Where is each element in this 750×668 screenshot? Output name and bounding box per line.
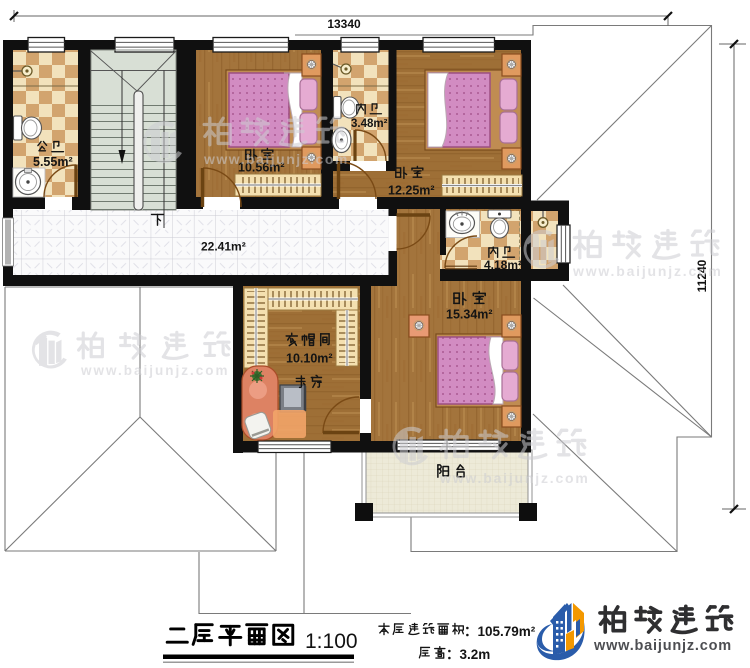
svg-text:1:100: 1:100: [305, 630, 358, 653]
svg-text:22.41m²: 22.41m²: [201, 240, 246, 254]
svg-text:3.48m²: 3.48m²: [351, 118, 388, 130]
svg-text:www.baijunjz.com: www.baijunjz.com: [439, 470, 590, 486]
svg-text:www.baijunjz.com: www.baijunjz.com: [572, 263, 723, 279]
svg-text:：3.2m: ：3.2m: [446, 647, 490, 662]
svg-text:13340: 13340: [327, 17, 361, 31]
svg-text:15.34m²: 15.34m²: [446, 308, 493, 322]
svg-text:10.10m²: 10.10m²: [286, 352, 333, 366]
svg-text:4.18m²: 4.18m²: [484, 258, 522, 272]
svg-text:12.25m²: 12.25m²: [388, 184, 435, 198]
svg-text:：105.79m²: ：105.79m²: [464, 624, 536, 639]
svg-text:www.baijunjz.com: www.baijunjz.com: [593, 638, 732, 654]
svg-text:5.55m²: 5.55m²: [33, 155, 73, 169]
svg-text:www.baijunjz.com: www.baijunjz.com: [80, 363, 230, 378]
svg-text:www.baijunjz.com: www.baijunjz.com: [203, 151, 349, 167]
